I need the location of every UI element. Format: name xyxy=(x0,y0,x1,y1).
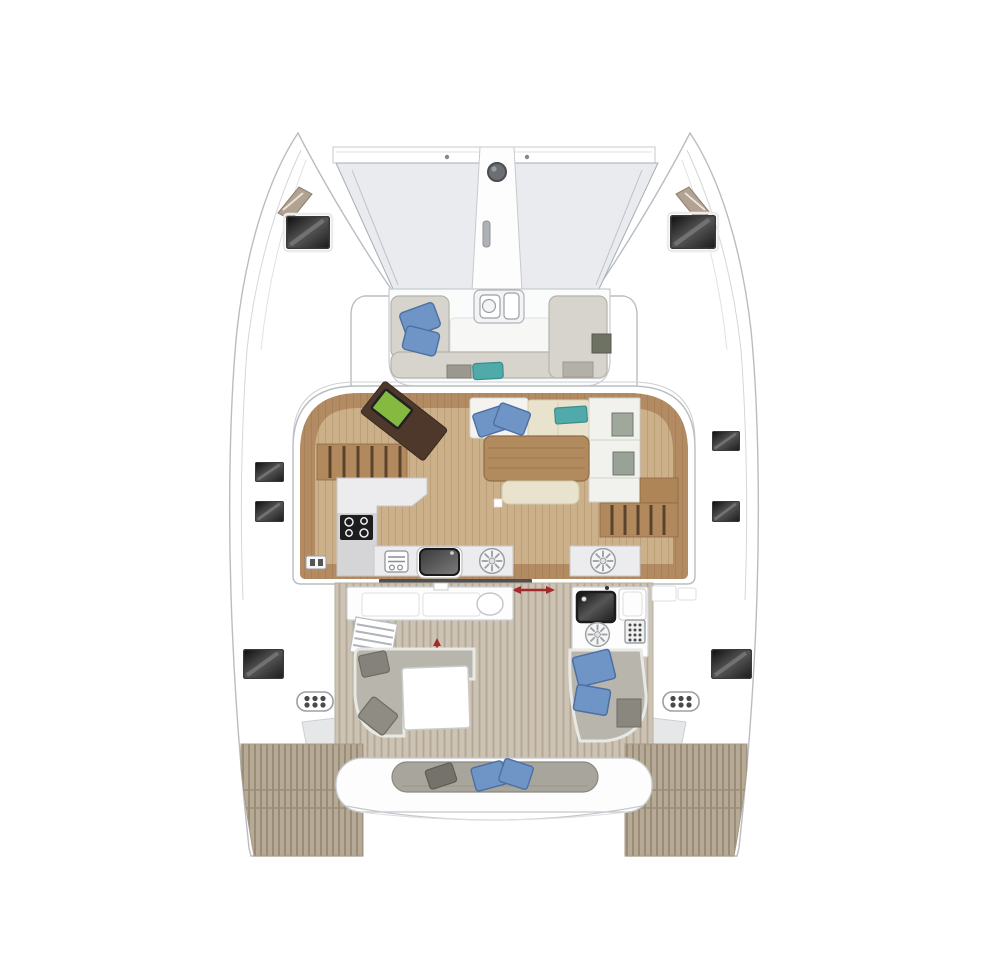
forward-hatch-pane-right xyxy=(504,293,519,319)
locker-icon xyxy=(385,551,408,572)
cushion-teal-fwd xyxy=(473,362,504,380)
starboard-shelf xyxy=(640,478,678,503)
grill-knob xyxy=(582,597,587,602)
sink-icon xyxy=(417,547,462,578)
wet-bar-module-2 xyxy=(423,593,480,616)
deck-hatch-port-mid-2 xyxy=(255,501,283,521)
module-dot xyxy=(605,586,609,590)
bow-hatch-starboard xyxy=(671,216,716,249)
deck-hatch-starboard-mid-2 xyxy=(712,501,739,521)
control-panel-icon xyxy=(625,620,645,643)
stern xyxy=(241,744,747,856)
starboard-companionway-stairs xyxy=(600,503,678,537)
deck-hatch-starboard-aft xyxy=(712,650,752,679)
crossbeam-cleat-starboard xyxy=(525,155,529,159)
cushion-teal-salon xyxy=(554,406,587,424)
cabinet-seat-1 xyxy=(612,413,633,436)
wet-bar xyxy=(347,583,513,620)
outdoor-galley-module xyxy=(572,586,648,657)
wet-bar-sink-oval xyxy=(477,593,503,615)
pillow-blue-chaise-2 xyxy=(573,684,611,716)
forward-bench-box xyxy=(447,365,471,378)
floor-marker xyxy=(494,499,502,507)
salon xyxy=(293,381,695,584)
cooktop-icon xyxy=(340,515,373,540)
step-pad-port xyxy=(297,692,333,711)
windlass-icon xyxy=(488,163,506,181)
wet-bar-module-1 xyxy=(362,593,419,616)
deck-hatch-port-aft xyxy=(244,650,284,679)
cockpit-table xyxy=(402,666,470,730)
vent-fan-icon-starboard xyxy=(591,549,616,574)
sliding-door-track xyxy=(379,579,532,583)
cabinet-seat-2 xyxy=(613,452,634,475)
chaise-insert xyxy=(617,699,641,727)
vent-locker-icon xyxy=(306,556,326,569)
module-panel-inner xyxy=(623,592,642,616)
deck-hatch-port-mid-1 xyxy=(255,462,283,481)
forward-side-table xyxy=(592,334,611,353)
forward-cockpit xyxy=(389,289,611,386)
bow-hatch-port xyxy=(287,217,330,249)
port-companionway-stairs xyxy=(317,444,407,480)
side-locker-1 xyxy=(652,586,676,601)
forward-hatch-pane-circle xyxy=(483,300,496,313)
side-locker-2 xyxy=(678,588,696,600)
dinette-table xyxy=(484,436,589,481)
cabinet-column xyxy=(589,398,640,502)
vent-fan-icon-port xyxy=(480,549,505,574)
stern-curve-inner xyxy=(360,812,628,820)
crossbeam-cleat-port xyxy=(445,155,449,159)
step-pad-starboard xyxy=(663,692,699,711)
wet-bar-tab xyxy=(434,583,448,590)
deck-hatch-starboard-mid-1 xyxy=(712,431,739,450)
windlass-highlight xyxy=(491,166,496,171)
forward-step xyxy=(563,362,593,377)
dinette-bench xyxy=(502,481,579,504)
grill-icon xyxy=(577,592,615,622)
anchor-locker-slot xyxy=(483,221,490,247)
deck-plan-canvas xyxy=(0,0,1004,958)
burner-icon xyxy=(586,623,610,647)
